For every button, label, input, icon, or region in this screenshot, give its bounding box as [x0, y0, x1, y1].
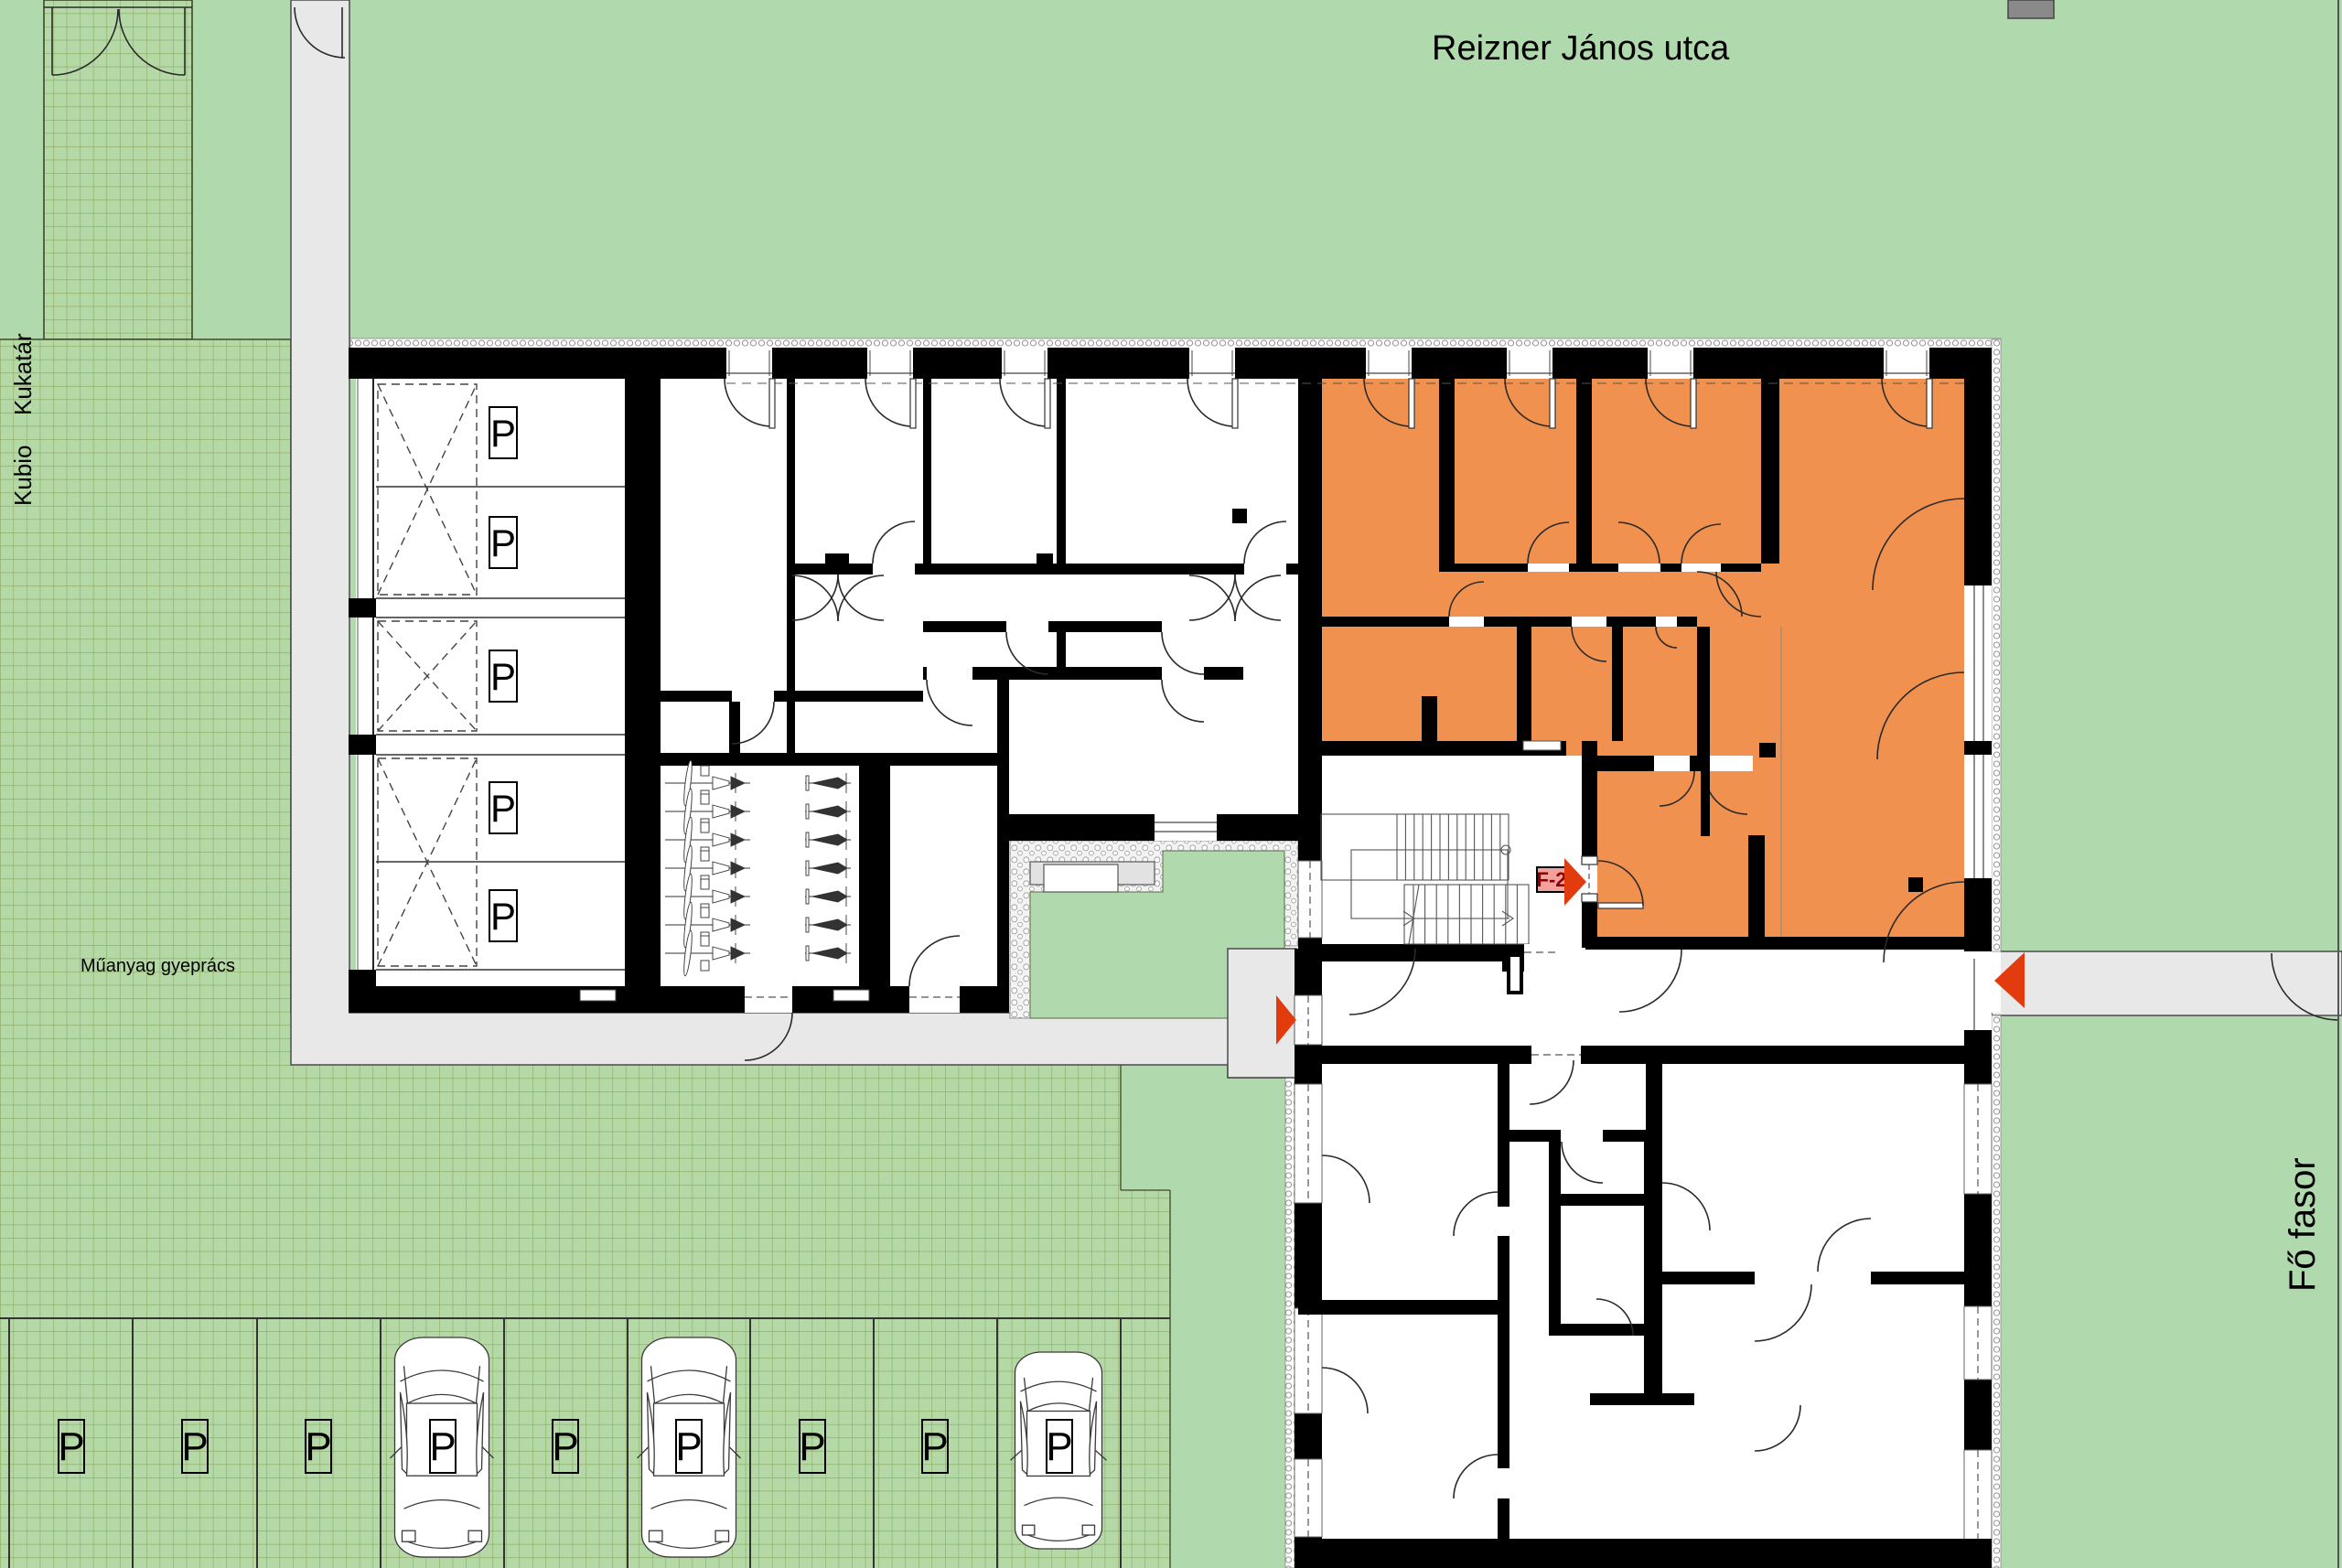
svg-text:P: P	[490, 521, 516, 564]
svg-text:P: P	[552, 1424, 578, 1469]
svg-text:Műanyag gyeprács: Műanyag gyeprács	[81, 956, 235, 976]
svg-text:Kukatár: Kukatár	[9, 333, 37, 415]
svg-text:P: P	[799, 1424, 825, 1469]
svg-text:P: P	[490, 412, 516, 455]
svg-text:P: P	[1046, 1424, 1072, 1469]
svg-text:P: P	[490, 655, 516, 698]
svg-text:P: P	[181, 1424, 208, 1469]
svg-text:P: P	[675, 1424, 702, 1469]
svg-text:F-2: F-2	[1537, 868, 1567, 891]
svg-text:P: P	[429, 1424, 456, 1469]
svg-text:P: P	[305, 1424, 331, 1469]
svg-text:P: P	[58, 1424, 84, 1469]
svg-text:P: P	[490, 787, 516, 830]
svg-text:Reizner János utca: Reizner János utca	[1432, 29, 1730, 68]
svg-text:Fő fasor: Fő fasor	[2283, 1157, 2323, 1292]
svg-text:P: P	[921, 1424, 948, 1469]
svg-text:Kubio: Kubio	[9, 446, 37, 507]
svg-text:P: P	[490, 895, 516, 938]
